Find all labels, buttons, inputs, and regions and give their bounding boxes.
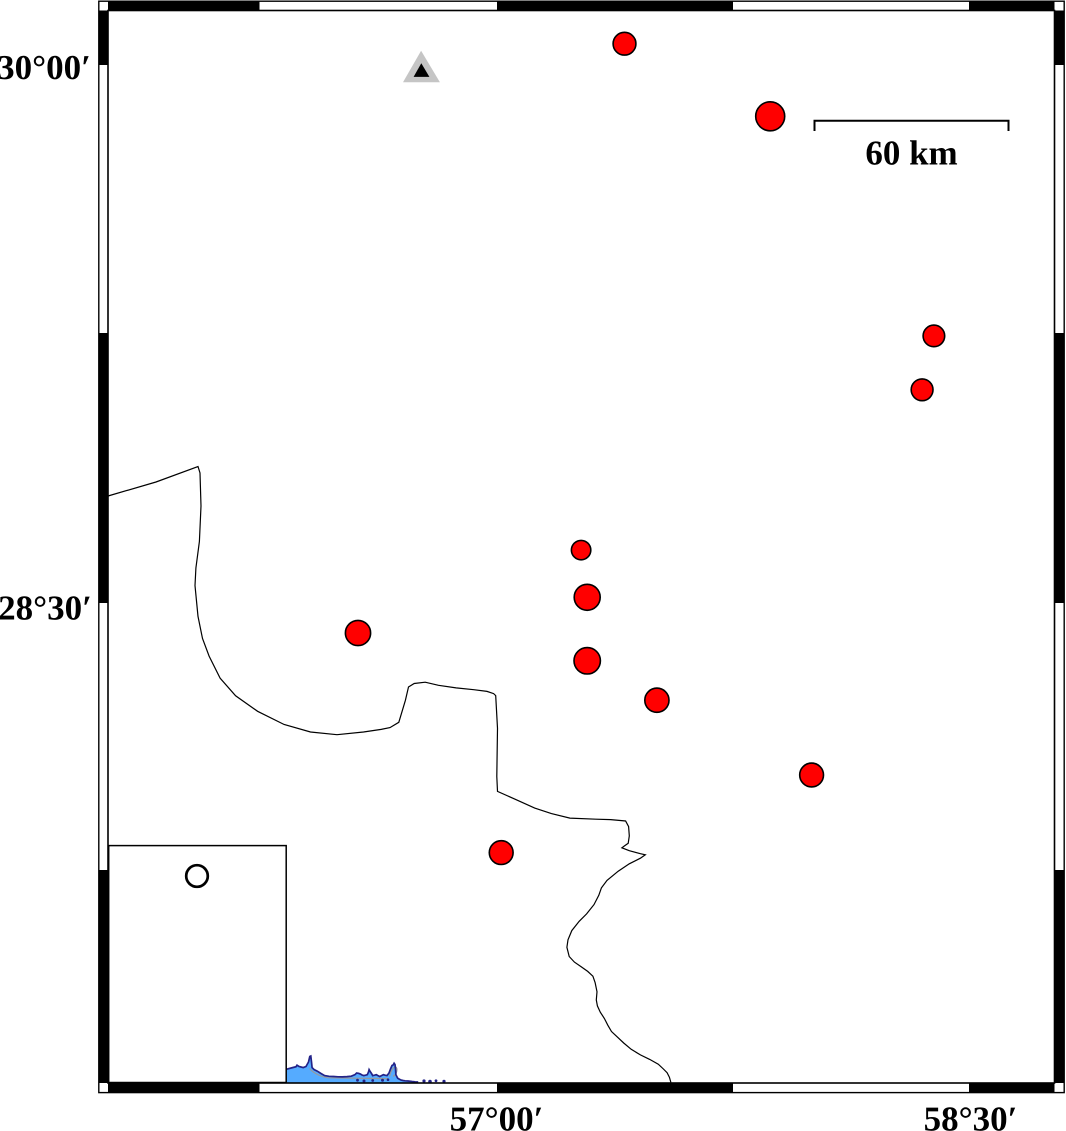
svg-text:57°00′: 57°00′ [450, 1100, 544, 1131]
svg-text:60 km: 60 km [865, 134, 957, 173]
svg-text:30°00′: 30°00′ [0, 48, 91, 87]
svg-text:28°30′: 28°30′ [0, 589, 92, 628]
svg-text:58°30′: 58°30′ [924, 1100, 1018, 1131]
